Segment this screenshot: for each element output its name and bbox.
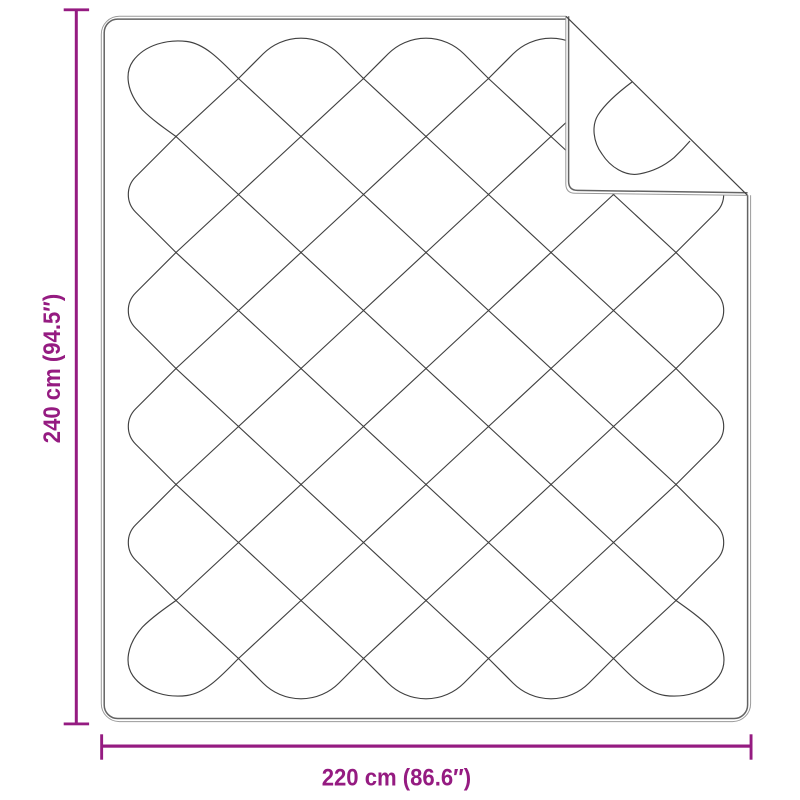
svg-text:220 cm (86.6″): 220 cm (86.6″) bbox=[322, 764, 471, 791]
svg-text:240 cm (94.5″): 240 cm (94.5″) bbox=[39, 294, 66, 443]
